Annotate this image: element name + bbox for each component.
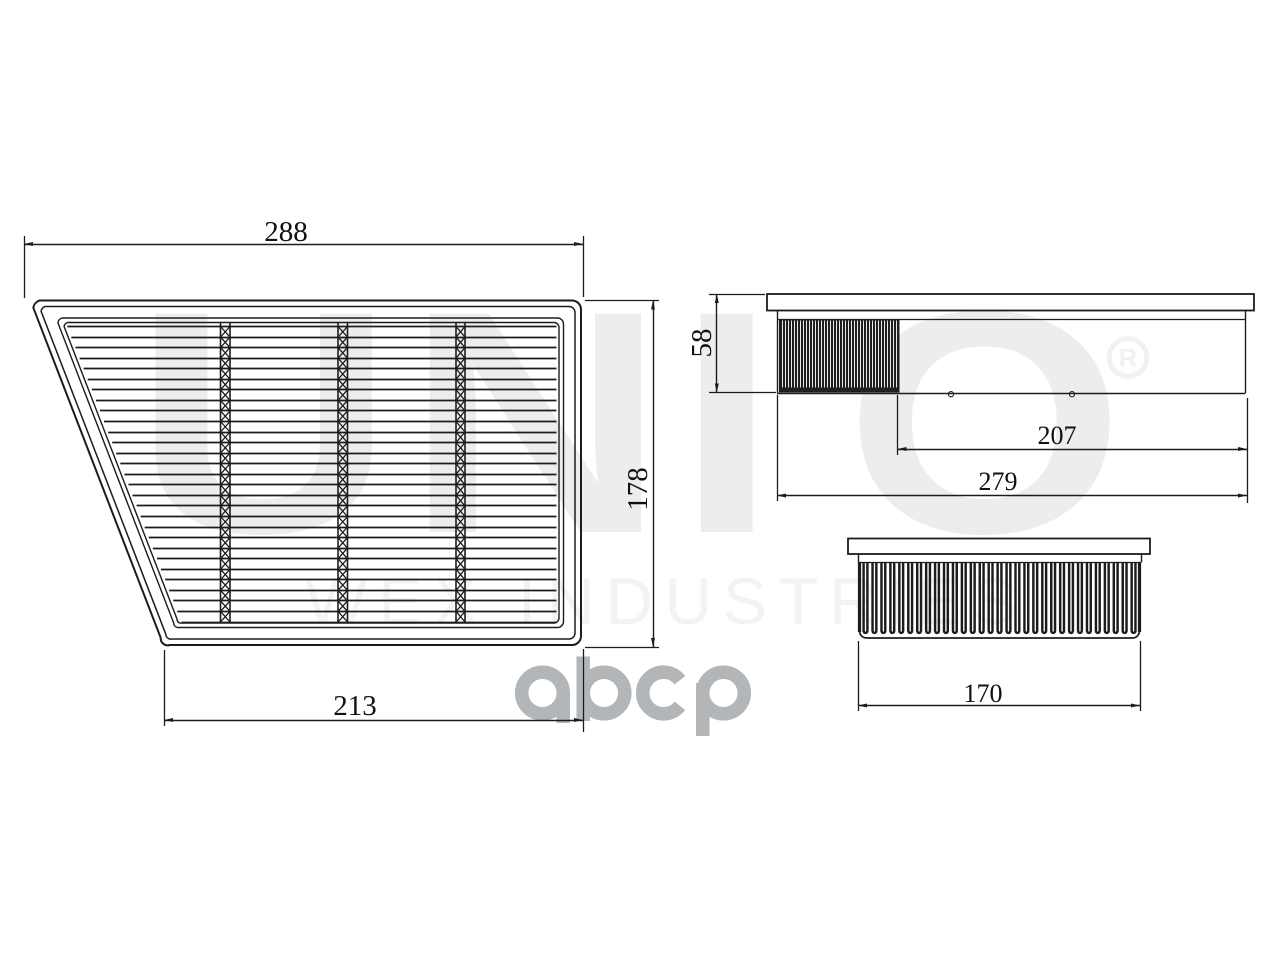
svg-text:279: 279 <box>979 467 1018 496</box>
svg-text:170: 170 <box>964 679 1003 708</box>
svg-text:288: 288 <box>264 216 308 248</box>
svg-text:207: 207 <box>1038 421 1077 450</box>
svg-text:58: 58 <box>686 329 718 358</box>
svg-text:I: I <box>677 245 777 600</box>
svg-text:178: 178 <box>622 467 654 511</box>
svg-text:213: 213 <box>333 690 377 722</box>
svg-text:R: R <box>1119 345 1137 373</box>
